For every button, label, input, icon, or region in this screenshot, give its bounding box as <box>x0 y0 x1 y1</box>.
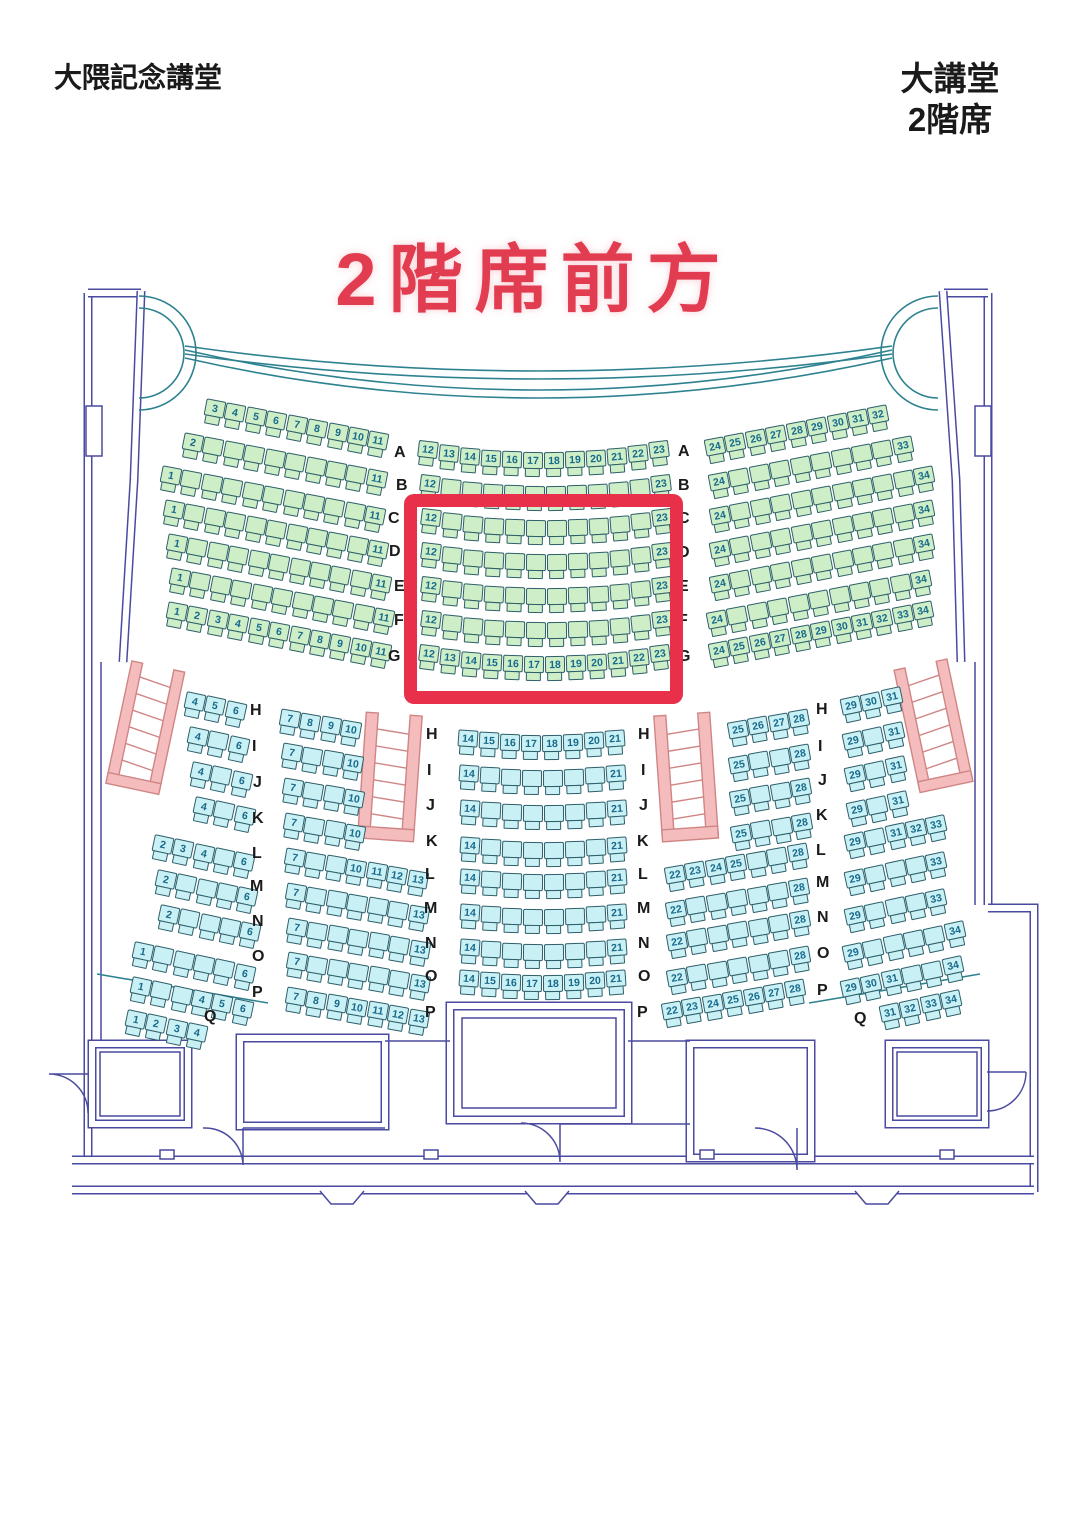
seat-green-right-F-25 <box>726 605 749 626</box>
seat-blue-center-I-16 <box>501 769 521 787</box>
seat-blue-r2-P-22: 22 <box>661 1000 684 1020</box>
seat-blue-r2-M-25 <box>726 889 749 909</box>
seat-blue-center-J-15 <box>481 802 502 820</box>
seat-green-right-G-30: 30 <box>830 616 853 637</box>
seat-green-right-C-30 <box>831 481 854 502</box>
seat-green-left-F-6 <box>271 587 294 608</box>
seat-green-center-A-20: 20 <box>586 449 607 467</box>
row-label-F: F <box>394 612 404 630</box>
seat-blue-l2-J-7: 7 <box>282 777 305 797</box>
seat-green-right-G-34: 34 <box>912 601 935 622</box>
seat-blue-r2-I-27 <box>769 747 792 767</box>
seat-green-center-A-17: 17 <box>523 452 543 469</box>
row-label-P: P <box>252 984 263 1002</box>
row-label-N: N <box>817 909 829 927</box>
seat-blue-r2-P-23: 23 <box>681 997 704 1017</box>
seat-blue-center-H-14: 14 <box>457 729 478 747</box>
row-label-B: B <box>396 477 408 495</box>
seat-green-right-D-25 <box>729 535 752 556</box>
seat-blue-l2-M-9 <box>326 890 349 910</box>
seat-green-right-E-32 <box>872 541 895 562</box>
seat-green-left-G-3: 3 <box>206 609 229 630</box>
seat-green-left-G-2: 2 <box>186 605 209 626</box>
seat-blue-center-I-20 <box>585 767 606 785</box>
seat-green-left-C-11: 11 <box>364 505 387 526</box>
seat-blue-l2-P-9: 9 <box>326 994 349 1014</box>
seat-green-left-B-4 <box>222 440 245 461</box>
row-label-J: J <box>639 797 648 815</box>
seat-blue-l2-N-10 <box>347 928 370 948</box>
seat-blue-center-L-21: 21 <box>606 868 627 886</box>
row-label-L: L <box>638 866 648 884</box>
seat-green-left-G-10: 10 <box>349 637 372 658</box>
row-label-L: L <box>816 842 826 860</box>
seat-blue-r1-N-29: 29 <box>843 905 866 926</box>
row-label-Q: Q <box>854 1010 866 1028</box>
seat-green-left-A-6: 6 <box>265 410 288 431</box>
seat-blue-r2-L-25: 25 <box>725 854 748 874</box>
seat-green-left-E-3 <box>206 541 229 562</box>
seat-blue-center-H-19: 19 <box>563 734 583 752</box>
seat-blue-r1-P-30: 30 <box>860 973 883 994</box>
seat-green-right-C-28 <box>790 489 813 510</box>
seat-blue-l2-O-12 <box>388 969 411 989</box>
seat-green-left-A-4: 4 <box>224 402 247 423</box>
seat-blue-r2-M-28: 28 <box>788 878 811 898</box>
seat-green-right-F-24: 24 <box>706 609 729 630</box>
seat-green-right-C-26 <box>749 497 772 518</box>
seat-blue-l2-M-11 <box>367 897 390 917</box>
seat-green-right-B-24: 24 <box>708 471 731 492</box>
row-label-M: M <box>637 900 650 918</box>
seat-blue-l2-M-7: 7 <box>285 882 308 902</box>
seat-blue-center-M-18 <box>544 909 564 926</box>
seat-blue-center-I-19 <box>564 769 584 787</box>
seat-blue-l1-I-6: 6 <box>227 735 250 756</box>
seat-green-center-A-14: 14 <box>459 447 480 466</box>
seat-blue-r2-M-27 <box>767 881 790 901</box>
seat-blue-center-K-18 <box>544 842 564 859</box>
seat-blue-center-M-15 <box>481 906 502 924</box>
seat-blue-l2-M-10 <box>346 893 369 913</box>
seat-green-right-E-28 <box>790 557 813 578</box>
seat-blue-center-H-16: 16 <box>500 734 520 752</box>
seat-green-right-D-27 <box>770 527 793 548</box>
seat-green-left-D-6 <box>265 519 288 540</box>
seat-blue-center-K-17 <box>523 842 543 859</box>
seat-green-right-F-32 <box>869 577 892 598</box>
seat-blue-center-N-19 <box>565 943 585 961</box>
seat-green-center-A-23: 23 <box>648 440 670 459</box>
seat-green-right-C-24: 24 <box>709 505 732 526</box>
seat-blue-r1-I-31: 31 <box>882 721 905 742</box>
seat-green-right-F-29 <box>808 589 831 610</box>
seat-green-left-D-3 <box>203 507 226 528</box>
seat-blue-center-M-20 <box>586 906 607 924</box>
row-label-I: I <box>641 762 645 780</box>
seat-green-left-F-10 <box>352 603 375 624</box>
row-label-N: N <box>252 913 264 931</box>
seat-blue-r1-Q-33: 33 <box>919 993 942 1014</box>
seat-blue-r2-L-24: 24 <box>705 857 728 877</box>
seat-blue-r1-O-31 <box>882 933 905 954</box>
seat-blue-l2-N-12 <box>388 935 411 955</box>
seat-blue-center-I-14: 14 <box>458 764 479 782</box>
seat-green-right-G-33: 33 <box>891 605 914 626</box>
seat-blue-r2-H-28: 28 <box>788 709 811 729</box>
row-label-K: K <box>426 833 438 851</box>
seat-green-right-C-33 <box>892 470 915 491</box>
row-label-H: H <box>638 726 650 744</box>
seat-green-left-F-11: 11 <box>373 607 396 628</box>
seat-blue-r2-O-23 <box>686 964 709 984</box>
row-label-L: L <box>425 866 435 884</box>
seat-blue-center-L-20 <box>586 871 607 889</box>
seat-blue-center-N-16 <box>502 943 522 961</box>
seat-blue-l1-O-2 <box>152 945 175 966</box>
row-label-P: P <box>817 982 828 1000</box>
seat-green-right-E-34: 34 <box>913 534 936 555</box>
row-label-P: P <box>425 1004 436 1022</box>
seat-blue-center-J-14: 14 <box>459 799 480 817</box>
seat-green-right-G-31: 31 <box>850 612 873 633</box>
seat-blue-r2-M-26 <box>747 885 770 905</box>
seat-blue-r2-H-25: 25 <box>727 719 750 739</box>
seat-green-right-B-25 <box>728 467 751 488</box>
seat-blue-center-N-18 <box>544 944 564 961</box>
seat-blue-r1-Q-34: 34 <box>939 989 962 1010</box>
seat-blue-center-O-20: 20 <box>585 972 606 990</box>
seat-blue-center-O-19: 19 <box>564 974 584 992</box>
seat-green-left-E-1: 1 <box>166 533 189 554</box>
seat-blue-l2-P-7: 7 <box>285 986 308 1006</box>
seat-blue-center-M-21: 21 <box>606 903 627 921</box>
seat-blue-center-K-15 <box>481 839 502 857</box>
seat-blue-r2-L-26 <box>746 850 769 870</box>
seat-blue-center-I-21: 21 <box>605 764 626 782</box>
seat-green-right-A-30: 30 <box>826 412 849 433</box>
seat-green-right-D-33 <box>892 504 915 525</box>
seat-green-center-A-19: 19 <box>565 451 586 469</box>
seat-green-left-F-1: 1 <box>169 567 192 588</box>
seat-blue-center-O-15: 15 <box>480 972 501 990</box>
row-label-N: N <box>638 935 650 953</box>
seat-blue-r1-N-31 <box>884 896 907 917</box>
row-label-P: P <box>637 1004 648 1022</box>
seat-blue-r1-O-34: 34 <box>943 920 966 941</box>
seat-green-right-G-27: 27 <box>769 628 792 649</box>
seat-green-left-B-5 <box>243 444 266 465</box>
seat-blue-center-N-15 <box>481 941 502 959</box>
row-label-I: I <box>427 762 431 780</box>
seat-blue-r1-H-30: 30 <box>860 691 883 712</box>
seat-blue-l1-H-6: 6 <box>224 700 247 721</box>
seat-green-left-B-11: 11 <box>365 468 388 489</box>
seat-blue-l2-J-9 <box>323 785 346 805</box>
seat-blue-l2-O-10 <box>347 962 370 982</box>
row-label-J: J <box>818 772 827 790</box>
seat-blue-l2-L-12: 12 <box>386 865 409 885</box>
seat-green-left-D-9 <box>326 531 349 552</box>
seat-blue-l2-N-8 <box>306 921 329 941</box>
seat-blue-l1-O-5 <box>213 958 236 979</box>
seat-blue-r2-O-26 <box>748 953 771 973</box>
seat-blue-r2-J-27 <box>770 781 793 801</box>
seat-blue-r2-K-26 <box>750 820 773 840</box>
seat-blue-center-O-14: 14 <box>458 969 479 987</box>
seat-blue-l1-J-6: 6 <box>230 770 253 791</box>
seat-blue-r2-O-25 <box>727 957 750 977</box>
seat-blue-center-J-19 <box>565 804 585 822</box>
seat-blue-l2-L-11: 11 <box>366 862 389 882</box>
seat-green-right-B-31 <box>850 443 873 464</box>
seat-blue-r1-K-31: 31 <box>886 790 909 811</box>
seat-blue-center-M-16 <box>502 908 522 926</box>
row-label-J: J <box>253 774 262 792</box>
seat-blue-center-H-21: 21 <box>604 729 625 747</box>
seat-blue-l2-K-9 <box>324 820 347 840</box>
seat-blue-r2-K-28: 28 <box>791 813 814 833</box>
seat-blue-l1-N-3 <box>178 908 201 929</box>
seat-blue-r1-P-34: 34 <box>941 955 964 976</box>
seat-blue-center-O-17: 17 <box>522 975 542 992</box>
seat-blue-center-H-20: 20 <box>584 732 605 750</box>
seat-blue-r2-M-24 <box>706 892 729 912</box>
seat-blue-r2-N-22: 22 <box>666 931 689 951</box>
seat-green-left-D-4 <box>224 511 247 532</box>
seat-green-right-G-29: 29 <box>810 620 833 641</box>
hall-name: 大講堂 <box>901 60 1000 97</box>
seat-blue-l1-P-6: 6 <box>231 998 254 1019</box>
seat-green-left-A-10: 10 <box>346 426 369 447</box>
seat-blue-center-H-15: 15 <box>479 732 500 750</box>
seat-green-right-C-29 <box>811 485 834 506</box>
seat-green-left-G-8: 8 <box>308 629 331 650</box>
seat-green-right-F-28 <box>787 593 810 614</box>
seat-green-right-A-25: 25 <box>724 432 747 453</box>
seat-green-center-A-15: 15 <box>481 449 502 467</box>
seat-blue-r2-J-26 <box>749 785 772 805</box>
seat-green-left-F-3 <box>209 575 232 596</box>
seat-green-left-D-7 <box>285 523 308 544</box>
seat-green-left-F-4 <box>230 579 253 600</box>
seat-blue-center-M-14: 14 <box>459 903 480 921</box>
seat-blue-r1-P-29: 29 <box>839 977 862 998</box>
seat-blue-center-K-16 <box>502 841 522 859</box>
seat-green-right-E-30 <box>831 549 854 570</box>
seat-blue-r1-Q-32: 32 <box>899 998 922 1019</box>
seat-green-right-B-33: 33 <box>891 436 914 457</box>
seat-blue-r1-L-29: 29 <box>843 831 866 852</box>
seat-blue-r1-M-31 <box>884 859 907 880</box>
seat-blue-r2-L-23: 23 <box>684 861 707 881</box>
seat-green-right-E-27 <box>770 561 793 582</box>
seat-green-left-A-11: 11 <box>367 430 390 451</box>
seat-green-right-G-26: 26 <box>748 632 771 653</box>
seat-green-left-D-1: 1 <box>163 499 186 520</box>
seat-blue-l1-H-5: 5 <box>204 695 227 716</box>
seat-green-right-B-26 <box>748 463 771 484</box>
row-label-N: N <box>425 935 437 953</box>
seat-green-left-B-2: 2 <box>182 432 205 453</box>
seat-blue-r1-Q-31: 31 <box>878 1002 901 1023</box>
seat-blue-r1-M-29: 29 <box>843 868 866 889</box>
seat-green-left-A-7: 7 <box>285 414 308 435</box>
seat-blue-r1-L-30 <box>864 827 887 848</box>
seat-green-left-G-7: 7 <box>288 625 311 646</box>
seat-blue-l2-O-9 <box>327 959 350 979</box>
seat-blue-r2-H-27: 27 <box>768 712 791 732</box>
seat-green-right-C-32 <box>872 473 895 494</box>
seat-green-right-F-27 <box>767 597 790 618</box>
seat-blue-r1-J-31: 31 <box>884 755 907 776</box>
seat-blue-center-J-18 <box>544 805 564 822</box>
seat-green-right-E-25 <box>729 569 752 590</box>
seat-blue-l1-L-3: 3 <box>172 838 195 859</box>
seat-green-left-E-10 <box>349 569 372 590</box>
seat-green-left-G-4: 4 <box>227 613 250 634</box>
seat-green-left-B-6 <box>263 448 286 469</box>
seat-green-left-D-11: 11 <box>367 539 390 560</box>
row-label-M: M <box>250 878 263 896</box>
row-label-C: C <box>388 510 400 528</box>
seat-blue-r2-M-22: 22 <box>665 899 688 919</box>
seat-blue-center-J-21: 21 <box>606 799 627 817</box>
seat-blue-l1-L-4: 4 <box>192 843 215 864</box>
seat-green-right-F-26 <box>746 601 769 622</box>
seat-blue-l2-L-9 <box>325 855 348 875</box>
seat-blue-center-K-19 <box>565 841 585 859</box>
seat-blue-center-K-20 <box>586 839 607 857</box>
seat-green-left-E-5 <box>247 549 270 570</box>
row-label-L: L <box>252 845 262 863</box>
seat-blue-r2-O-28: 28 <box>789 946 812 966</box>
seat-green-center-A-21: 21 <box>606 447 627 466</box>
seat-green-left-C-7 <box>282 489 305 510</box>
seat-blue-r1-H-31: 31 <box>880 686 903 707</box>
seat-blue-center-H-17: 17 <box>521 735 541 752</box>
seat-green-right-G-25: 25 <box>728 636 751 657</box>
seat-blue-l2-I-9 <box>322 750 345 770</box>
seat-blue-center-I-15 <box>480 767 501 785</box>
seat-green-left-C-8 <box>302 493 325 514</box>
seat-blue-r1-O-33 <box>923 925 946 946</box>
seat-green-right-A-28: 28 <box>785 420 808 441</box>
seat-green-right-A-32: 32 <box>867 404 890 425</box>
seat-blue-r2-P-26: 26 <box>743 986 766 1006</box>
row-label-M: M <box>424 900 437 918</box>
row-label-O: O <box>425 968 437 986</box>
seat-green-left-G-6: 6 <box>268 621 291 642</box>
seat-blue-center-L-18 <box>544 874 564 891</box>
seat-blue-l2-H-7: 7 <box>279 708 302 728</box>
seat-blue-r1-M-33: 33 <box>925 851 948 872</box>
seat-blue-l1-M-4 <box>195 878 218 899</box>
seat-blue-r1-N-30 <box>864 901 887 922</box>
seat-green-left-D-10 <box>346 535 369 556</box>
seat-green-center-A-13: 13 <box>438 444 460 463</box>
seat-green-left-E-7 <box>288 557 311 578</box>
seat-green-right-A-29: 29 <box>806 416 829 437</box>
seat-blue-l2-L-7: 7 <box>284 847 307 867</box>
seat-green-left-F-2 <box>189 571 212 592</box>
seat-green-right-E-24: 24 <box>709 573 732 594</box>
seat-green-left-E-8 <box>308 561 331 582</box>
seat-green-right-E-31 <box>851 545 874 566</box>
seat-green-left-C-1: 1 <box>160 465 183 486</box>
seat-green-right-A-31: 31 <box>846 408 869 429</box>
seat-green-right-A-26: 26 <box>744 428 767 449</box>
seat-blue-r1-L-31: 31 <box>884 822 907 843</box>
seat-blue-r1-J-30 <box>864 760 887 781</box>
seat-blue-l2-H-10: 10 <box>340 719 363 739</box>
seat-blue-center-O-21: 21 <box>605 969 626 987</box>
seat-blue-r2-N-26 <box>748 917 771 937</box>
seat-blue-center-I-18 <box>543 770 563 787</box>
seat-blue-r1-L-33: 33 <box>925 814 948 835</box>
seat-blue-l2-L-10: 10 <box>345 858 368 878</box>
seat-blue-r2-M-23 <box>685 896 708 916</box>
seat-blue-r1-K-30 <box>866 795 889 816</box>
seat-blue-l1-O-3 <box>172 950 195 971</box>
seating-chart-page: 3456789101121111111111111112345678910111… <box>0 0 1077 1522</box>
seat-green-center-A-12: 12 <box>417 440 439 459</box>
seat-blue-center-M-17 <box>523 909 543 926</box>
seat-green-right-C-34: 34 <box>913 466 936 487</box>
seat-blue-r2-P-28: 28 <box>784 979 807 999</box>
seat-green-right-D-29 <box>811 519 834 540</box>
row-label-I: I <box>252 738 256 756</box>
seat-blue-l2-N-7: 7 <box>286 917 309 937</box>
seat-blue-r2-I-28: 28 <box>789 744 812 764</box>
seat-blue-r2-P-27: 27 <box>763 982 786 1002</box>
row-label-K: K <box>252 810 264 828</box>
seat-green-left-C-10 <box>343 501 366 522</box>
seat-green-right-F-33 <box>889 574 912 595</box>
seat-blue-r2-P-25: 25 <box>722 990 745 1010</box>
seat-blue-r2-J-28: 28 <box>790 778 813 798</box>
seat-green-center-B-23: 23 <box>650 474 672 493</box>
seat-green-left-A-5: 5 <box>244 406 267 427</box>
seat-blue-l2-P-8: 8 <box>305 990 328 1010</box>
seat-blue-r2-P-24: 24 <box>702 993 725 1013</box>
seat-blue-l2-J-10: 10 <box>343 788 366 808</box>
seat-blue-r1-I-30 <box>862 726 885 747</box>
seat-green-left-C-6 <box>262 485 285 506</box>
seat-blue-r2-N-25 <box>727 921 750 941</box>
seat-blue-r1-M-30 <box>864 864 887 885</box>
seat-blue-r1-N-33: 33 <box>925 888 948 909</box>
seat-green-right-D-30 <box>831 515 854 536</box>
seat-blue-r1-O-29: 29 <box>841 942 864 963</box>
seat-blue-r1-K-29: 29 <box>845 799 868 820</box>
seat-green-left-C-2 <box>180 469 203 490</box>
seat-blue-l2-I-8 <box>301 746 324 766</box>
row-label-D: D <box>389 543 401 561</box>
row-label-H: H <box>250 702 262 720</box>
seat-blue-r2-N-23 <box>686 928 709 948</box>
seat-blue-l1-K-5 <box>213 800 236 821</box>
seat-blue-l2-N-11 <box>368 932 391 952</box>
seat-green-left-C-4 <box>221 477 244 498</box>
seat-green-left-F-5 <box>250 583 273 604</box>
floor-label: 2階席 <box>908 101 992 138</box>
row-label-A: A <box>394 444 406 462</box>
seat-blue-l2-O-11 <box>368 966 391 986</box>
seat-green-right-G-32: 32 <box>871 608 894 629</box>
seat-green-right-F-30 <box>828 585 851 606</box>
seat-green-right-E-33 <box>892 538 915 559</box>
